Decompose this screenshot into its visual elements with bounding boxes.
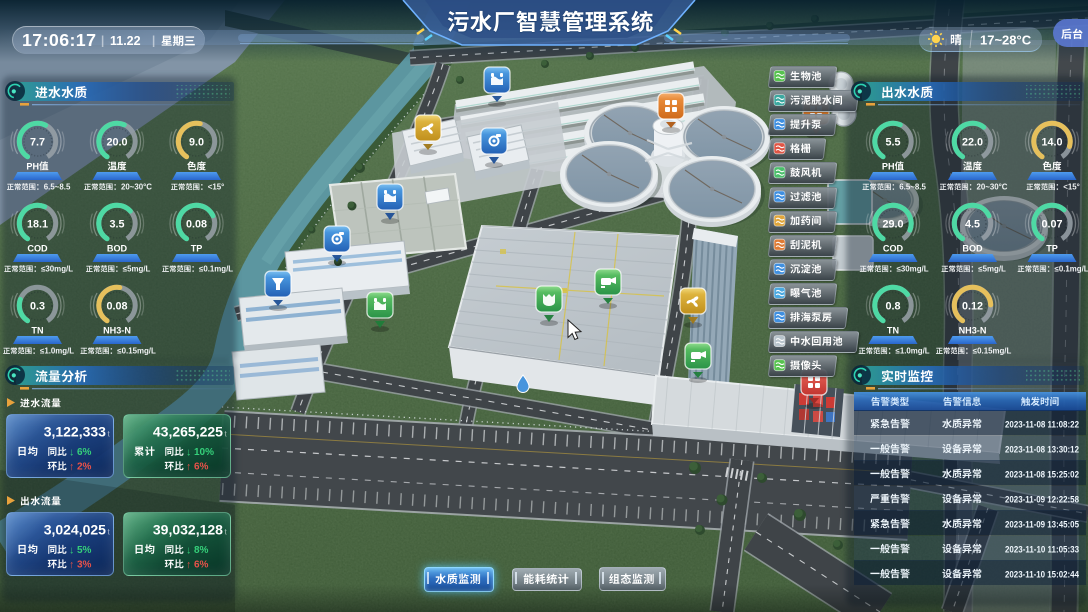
svg-text:2023-11-10 11:05:33: 2023-11-10 11:05:33 [1005,544,1079,555]
svg-text:|: | [152,36,155,48]
svg-text:0.08: 0.08 [106,301,127,313]
svg-text:2023-11-09 12:22:58: 2023-11-09 12:22:58 [1005,494,1079,505]
svg-text:2023-11-08 13:30:12: 2023-11-08 13:30:12 [1005,444,1079,455]
svg-text:↓: ↓ [186,447,191,459]
svg-text:↑: ↑ [186,559,191,571]
svg-text:2023-11-10 15:02:44: 2023-11-10 15:02:44 [1005,569,1080,580]
svg-text:29.0: 29.0 [882,219,903,231]
svg-text:COD: COD [27,244,48,254]
svg-text:17~28°C: 17~28°C [980,33,1032,48]
svg-text:TP: TP [191,244,203,254]
svg-text:BOD: BOD [962,244,983,254]
svg-text:t: t [225,430,228,439]
svg-text:4.5: 4.5 [965,219,980,231]
svg-text:3,024,025: 3,024,025 [44,522,106,538]
svg-text:t: t [108,528,111,537]
svg-text:：6.5~8.5: ：6.5~8.5 [891,183,926,192]
svg-text:：≤0.15mg/L: ：≤0.15mg/L [109,347,156,356]
svg-text:↓: ↓ [186,545,191,557]
svg-text:11.22: 11.22 [110,34,141,48]
svg-text:0.3: 0.3 [30,301,45,313]
svg-text:20.0: 20.0 [106,137,127,149]
svg-text:：≤0.1mg/L: ：≤0.1mg/L [1047,265,1088,274]
svg-text:PH: PH [26,162,39,172]
svg-text:2023-11-08 11:08:22: 2023-11-08 11:08:22 [1005,419,1079,430]
svg-text:2023-11-09 13:45:05: 2023-11-09 13:45:05 [1005,519,1080,530]
svg-text:：<15°: ：<15° [1055,183,1079,192]
svg-text:3,122,333: 3,122,333 [44,424,106,440]
svg-text:↓: ↓ [69,545,74,557]
svg-text:：20~30°C: ：20~30°C [113,183,152,192]
svg-text:：≤0.15mg/L: ：≤0.15mg/L [965,347,1012,356]
svg-text:PH: PH [882,162,895,172]
svg-text:6%: 6% [194,560,209,571]
svg-text:2023-11-08 15:25:02: 2023-11-08 15:25:02 [1005,469,1079,480]
svg-text:TN: TN [31,326,43,336]
svg-text:：≤30mg/L: ：≤30mg/L [889,265,929,274]
svg-text:17:06:17: 17:06:17 [22,30,96,50]
svg-text:t: t [225,528,228,537]
svg-text:10%: 10% [194,447,214,458]
svg-text:|: | [101,36,104,48]
svg-text:：20~30°C: ：20~30°C [969,183,1008,192]
svg-text:6%: 6% [194,462,209,473]
svg-text:NH3-N: NH3-N [103,326,131,336]
svg-text:t: t [108,430,111,439]
svg-text:COD: COD [883,244,904,254]
svg-text:6%: 6% [77,447,92,458]
svg-text:0.07: 0.07 [1041,219,1062,231]
svg-text:3%: 3% [77,560,92,571]
svg-text:BOD: BOD [107,244,128,254]
svg-text:：<15°: ：<15° [200,183,224,192]
svg-text:2%: 2% [77,462,92,473]
svg-text:：≤0.1mg/L: ：≤0.1mg/L [191,265,233,274]
svg-text:TP: TP [1046,244,1058,254]
svg-text:14.0: 14.0 [1041,137,1062,149]
svg-text:：≤5mg/L: ：≤5mg/L [115,265,151,274]
svg-text:：≤5mg/L: ：≤5mg/L [970,265,1006,274]
svg-text:0.12: 0.12 [962,301,983,313]
svg-text:NH3-N: NH3-N [959,326,987,336]
svg-text:43,265,225: 43,265,225 [153,424,223,440]
svg-text:5%: 5% [77,545,92,556]
svg-text:5.5: 5.5 [885,137,900,149]
svg-text:↑: ↑ [69,461,74,473]
svg-text:3.5: 3.5 [109,219,124,231]
svg-text:7.7: 7.7 [30,137,45,149]
svg-text:18.1: 18.1 [27,219,48,231]
svg-text:39,032,128: 39,032,128 [153,522,223,538]
svg-text:↑: ↑ [186,461,191,473]
svg-text:：≤30mg/L: ：≤30mg/L [33,265,73,274]
svg-text:↓: ↓ [69,447,74,459]
svg-text:↑: ↑ [69,559,74,571]
svg-text:TN: TN [887,326,899,336]
svg-text:：6.5~8.5: ：6.5~8.5 [36,183,71,192]
svg-text:8%: 8% [194,545,209,556]
svg-text:：≤1.0mg/L: ：≤1.0mg/L [888,347,930,356]
svg-text:9.0: 9.0 [189,137,204,149]
svg-text:22.0: 22.0 [962,137,983,149]
svg-text:0.8: 0.8 [885,301,900,313]
svg-text:0.08: 0.08 [186,219,207,231]
svg-text:：≤1.0mg/L: ：≤1.0mg/L [32,347,74,356]
